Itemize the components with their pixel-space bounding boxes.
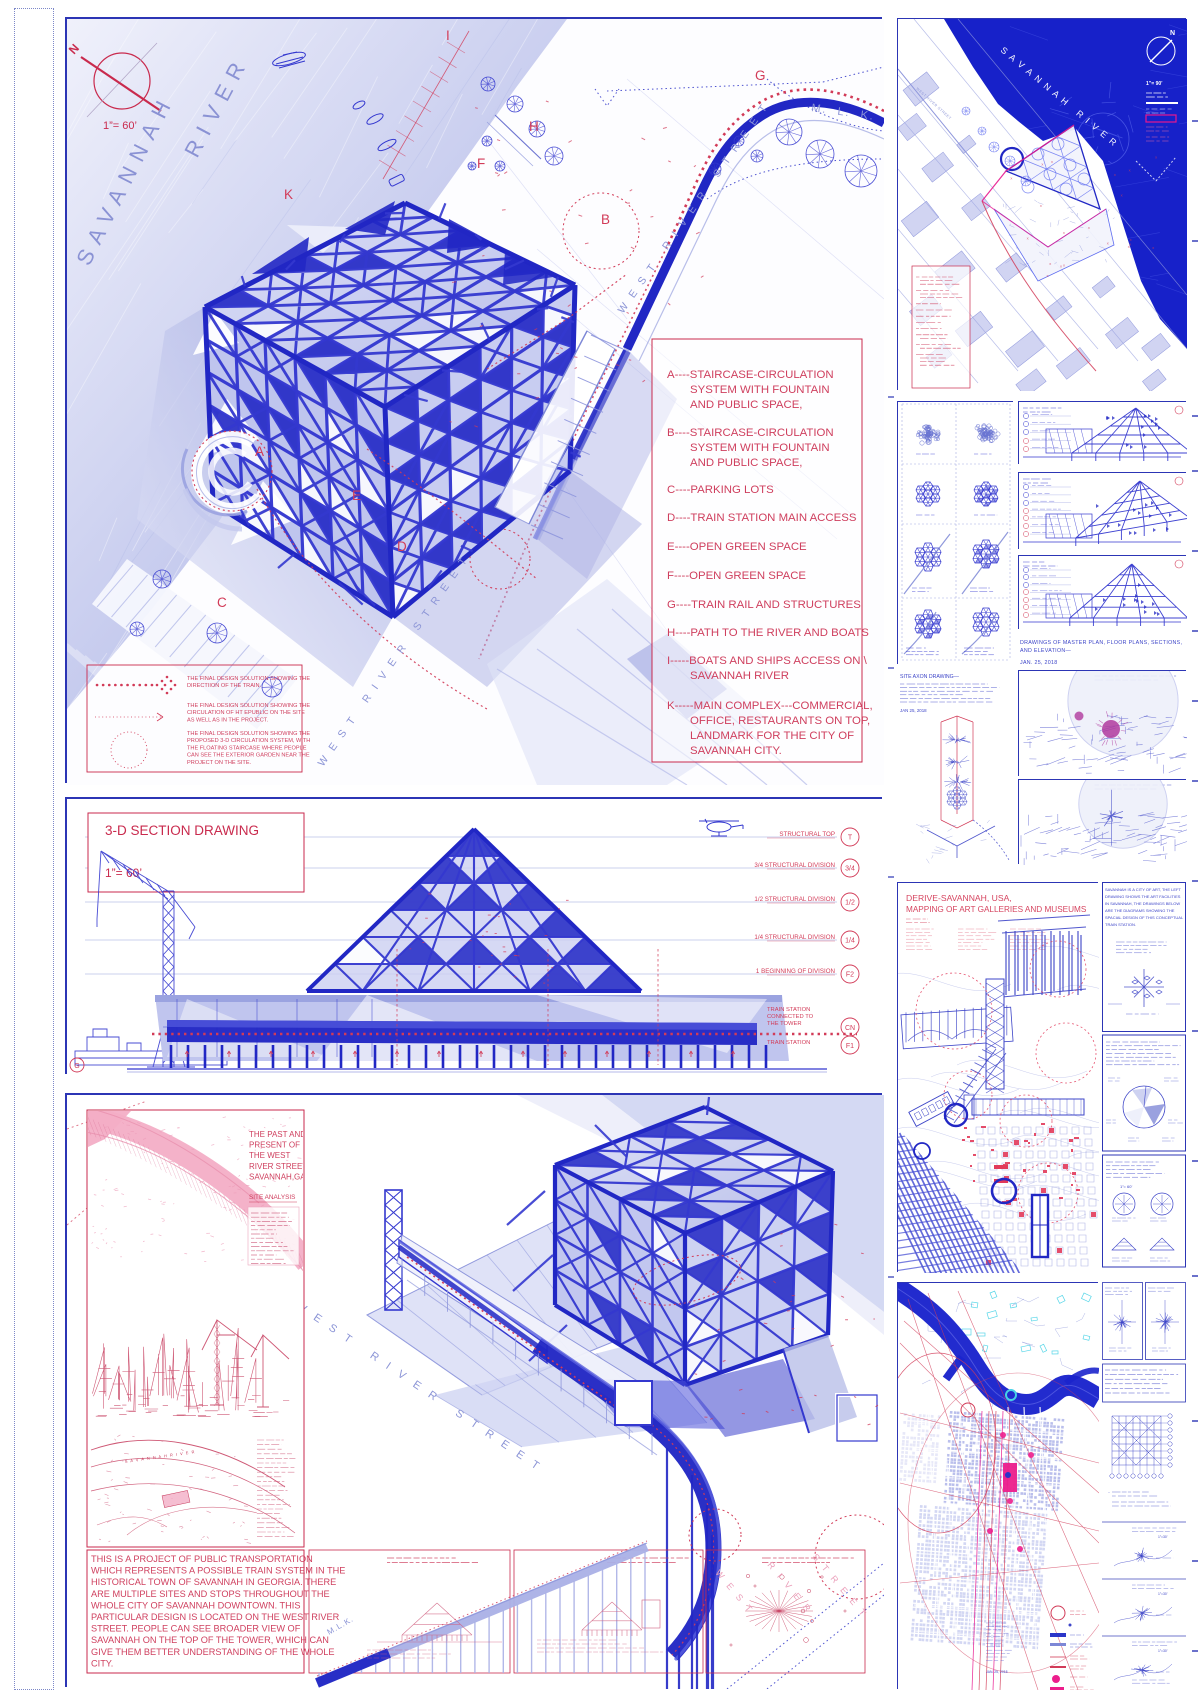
svg-text:THE WEST: THE WEST — [249, 1151, 290, 1160]
svg-text:1/4 STRUCTURAL DIVISION: 1/4 STRUCTURAL DIVISION — [754, 934, 835, 941]
svg-text:H----PATH TO THE RIVER AND BOA: H----PATH TO THE RIVER AND BOATS — [667, 627, 869, 639]
svg-text:F: F — [477, 156, 485, 171]
svg-text:3/4: 3/4 — [845, 866, 855, 873]
svg-text:AS WELL AS IN THE PROJECT.: AS WELL AS IN THE PROJECT. — [187, 717, 269, 723]
svg-text:D: D — [397, 539, 407, 554]
svg-text:DRAWING SHOWS THE ART FACILITI: DRAWING SHOWS THE ART FACILITIES — [1105, 894, 1181, 899]
svg-text:x: x — [1027, 236, 1029, 241]
svg-text:x: x — [1155, 154, 1157, 159]
svg-text:SAVANNAH,GA.: SAVANNAH,GA. — [249, 1172, 308, 1181]
svg-text:N: N — [1170, 30, 1175, 37]
svg-text:I-----BOATS AND SHIPS ACCESS O: I-----BOATS AND SHIPS ACCESS ON \ — [667, 655, 868, 667]
svg-text:E: E — [352, 488, 361, 503]
svg-text:·: · — [1108, 1490, 1110, 1496]
svg-text:CN: CN — [845, 1025, 855, 1032]
svg-text:x: x — [1010, 175, 1012, 180]
svg-text:THE FINAL DESIGN SOLUTION SHOW: THE FINAL DESIGN SOLUTION SHOWING THE — [187, 731, 310, 737]
svg-text:THIS IS A PROJECT OF PUBLIC T: THIS IS A PROJECT OF PUBLIC TRANSPORTATI… — [91, 1554, 313, 1564]
svg-text:STRUCTURAL TOP: STRUCTURAL TOP — [779, 831, 835, 838]
svg-text:PROJECT ON THE SITE.: PROJECT ON THE SITE. — [187, 760, 252, 766]
svg-text:DERIVE-SAVANNAH, USA,: DERIVE-SAVANNAH, USA, — [906, 893, 1012, 903]
svg-text:PRESENT OF: PRESENT OF — [249, 1141, 300, 1150]
svg-text:LANDMARK FOR THE CITY OF: LANDMARK FOR THE CITY OF — [690, 730, 854, 742]
svg-text:G----TRAIN RAIL AND STRUCTURES: G----TRAIN RAIL AND STRUCTURES — [667, 599, 861, 611]
svg-text:1”=30’: 1”=30’ — [1158, 1592, 1168, 1596]
svg-text:DIRECTIION OF THE TRAIN.: DIRECTIION OF THE TRAIN. — [187, 683, 262, 689]
svg-text:1”=30’: 1”=30’ — [1158, 1649, 1168, 1653]
svg-text:K: K — [284, 187, 293, 202]
svg-text:CITY.: CITY. — [91, 1658, 113, 1668]
svg-text:THE FINAL DESIGN SOLUTION SHOW: THE FINAL DESIGN SOLUTION SHOWING THE — [187, 703, 310, 709]
svg-text:F2: F2 — [846, 972, 854, 979]
svg-text:THE FINAL DESIGN SOLUTION SHOW: THE FINAL DESIGN SOLUTION SHOWING THE — [187, 676, 310, 682]
svg-text:x: x — [1063, 230, 1065, 235]
svg-text:F----OPEN GREEN SPACE: F----OPEN GREEN SPACE — [667, 570, 806, 582]
svg-text:JAN 25, 2018: JAN 25, 2018 — [900, 708, 927, 713]
svg-text:x: x — [1051, 159, 1053, 164]
svg-text:1”=30’: 1”=30’ — [1158, 1535, 1168, 1539]
svg-text:THE FLOATING STAIRCASE WHERE: THE FLOATING STAIRCASE WHERE PEOPLE — [187, 745, 307, 751]
svg-text:D----TRAIN STATION MAIN ACCESS: D----TRAIN STATION MAIN ACCESS — [667, 512, 857, 524]
svg-text:1/2: 1/2 — [845, 900, 855, 907]
svg-text:A----STAIRCASE-CIRCULATION: A----STAIRCASE-CIRCULATION — [667, 369, 834, 381]
svg-text:WHOLE CITY OF SAVANNAH DOWNTOW: WHOLE CITY OF SAVANNAH DOWNTOWN. THIS — [91, 1600, 300, 1610]
svg-text:AND PUBLIC SPACE,: AND PUBLIC SPACE, — [690, 457, 802, 469]
svg-text:x: x — [1129, 242, 1131, 247]
svg-text:SYSTEM WITH FOUNTAIN: SYSTEM WITH FOUNTAIN — [690, 384, 830, 396]
svg-text:WHICH REPRESENTS A POSSIBLE TR: WHICH REPRESENTS A POSSIBLE TRAIN SYSTEM… — [91, 1566, 345, 1576]
svg-text:1/4: 1/4 — [845, 938, 855, 945]
svg-text:x: x — [1040, 203, 1042, 208]
svg-text:DRAWINGS OF MASTER PLAN, FLOOR: DRAWINGS OF MASTER PLAN, FLOOR PLANS, SE… — [1020, 640, 1182, 646]
svg-text:SAVANNAH ON THE TOP OF THE TOW: SAVANNAH ON THE TOP OF THE TOWER, WHICH … — [91, 1635, 329, 1645]
svg-text:SAVANNAH CITY.: SAVANNAH CITY. — [690, 745, 782, 757]
svg-text:C: C — [217, 595, 227, 610]
svg-text:F1: F1 — [846, 1043, 854, 1050]
svg-text:TRAIN STATION: TRAIN STATION — [767, 1040, 810, 1046]
svg-text:x: x — [1047, 273, 1049, 278]
svg-text:SPACIAL DESIGN OF THIS CONCEPT: SPACIAL DESIGN OF THIS CONCEPTUAL — [1105, 915, 1184, 920]
svg-text:x: x — [1041, 162, 1043, 167]
svg-text:G: G — [755, 68, 766, 83]
svg-text:SYSTEM WITH FOUNTAIN: SYSTEM WITH FOUNTAIN — [690, 442, 830, 454]
svg-text:K-----MAIN COMPLEX---COMMERCIA: K-----MAIN COMPLEX---COMMERCIAL, — [667, 700, 873, 712]
svg-text:x: x — [1088, 225, 1090, 230]
svg-text:STREET. PEOPLE CAN SEE BROADE: STREET. PEOPLE CAN SEE BROADER VIEW OF — [91, 1624, 301, 1634]
svg-text:IN SAVANNAH, THE DRAWINGS BELO: IN SAVANNAH, THE DRAWINGS BELOW — [1105, 901, 1180, 906]
svg-text:x: x — [1129, 168, 1131, 173]
svg-text:1”= 60’: 1”= 60’ — [1120, 1184, 1132, 1189]
svg-text:1”= 60’: 1”= 60’ — [103, 120, 137, 132]
svg-text:T: T — [848, 835, 853, 842]
svg-text:1”= 90’: 1”= 90’ — [1146, 81, 1163, 87]
svg-text:THE TOWER: THE TOWER — [767, 1021, 802, 1027]
svg-text:x: x — [1049, 261, 1051, 266]
svg-text:x: x — [1121, 193, 1123, 198]
svg-text:1/2 STRUCTURAL DIVISION: 1/2 STRUCTURAL DIVISION — [754, 896, 835, 903]
svg-text:SITE AXON DRAWING—: SITE AXON DRAWING— — [900, 674, 960, 680]
svg-text:H: H — [529, 119, 539, 134]
svg-text:CONNECTED TO: CONNECTED TO — [767, 1014, 814, 1020]
svg-text:AND ELEVATION—: AND ELEVATION— — [1020, 648, 1071, 654]
svg-text:x: x — [1114, 172, 1116, 177]
svg-text:RIVER STREET,: RIVER STREET, — [249, 1162, 309, 1171]
svg-text:x: x — [1107, 241, 1109, 246]
svg-text:1 BEGINNING OF DIVISION: 1 BEGINNING OF DIVISION — [756, 968, 835, 975]
svg-text:AND PUBLIC SPACE,: AND PUBLIC SPACE, — [690, 399, 802, 411]
svg-text:x: x — [1152, 245, 1154, 250]
svg-text:CAN SEE THE EXTERIOR GARDEN NE: CAN SEE THE EXTERIOR GARDEN NEAR THE — [187, 753, 310, 759]
svg-text:HISTORICAL TOWN OF SAVANNAH IN: HISTORICAL TOWN OF SAVANNAH IN GEORGIA. … — [91, 1577, 336, 1587]
svg-text:ARE MULTIPLE SITES AND STOPS T: ARE MULTIPLE SITES AND STOPS THROUGHOUT … — [91, 1589, 330, 1599]
svg-text:SITE ANALYSIS: SITE ANALYSIS — [249, 1194, 295, 1201]
svg-text:JAN. 25, 2018: JAN. 25, 2018 — [1020, 660, 1057, 666]
svg-text:PARTICULAR DESIGN IS LOCATED O: PARTICULAR DESIGN IS LOCATED ON THE WEST… — [91, 1612, 340, 1622]
svg-text:3-D SECTION DRAWING: 3-D SECTION DRAWING — [105, 823, 259, 838]
svg-text:THE PAST AND: THE PAST AND — [249, 1130, 306, 1139]
svg-text:A: A — [255, 444, 264, 459]
svg-text:CIRCULATION OF HT EPUBLIC ON T: CIRCULATION OF HT EPUBLIC ON THE SITE — [187, 710, 305, 716]
svg-text:ARE THE DIAGRAMS SHOWING THE: ARE THE DIAGRAMS SHOWING THE — [1105, 908, 1175, 913]
svg-text:SAVANNAH IS A CITY OF ART, THE: SAVANNAH IS A CITY OF ART, THE LEFT — [1105, 887, 1181, 892]
svg-text:C----PARKING LOTS: C----PARKING LOTS — [667, 484, 774, 496]
svg-text:TRAIN STATION: TRAIN STATION — [767, 1007, 810, 1013]
svg-text:SAVANNAH RIVER: SAVANNAH RIVER — [690, 670, 789, 682]
svg-text:JAN. 25, 2018: JAN. 25, 2018 — [986, 1670, 1008, 1674]
svg-text:PROPOSED 3-D CIRCULATION SYSTE: PROPOSED 3-D CIRCULATION SYSTEM, WITH — [187, 738, 310, 744]
svg-text:x: x — [1060, 263, 1062, 268]
svg-text:B: B — [601, 212, 610, 227]
svg-text:G: G — [74, 1063, 79, 1070]
svg-text:x: x — [1063, 262, 1065, 267]
svg-text:OFFICE, RESTAURANTS ON TOP,: OFFICE, RESTAURANTS ON TOP, — [690, 715, 870, 727]
svg-text:E----OPEN GREEN SPACE: E----OPEN GREEN SPACE — [667, 541, 807, 553]
svg-text:I: I — [446, 28, 450, 43]
svg-text:GIVE THEM BETTER UNDERSTANDING: GIVE THEM BETTER UNDERSTANDING OF THE WH… — [91, 1647, 335, 1657]
svg-text:3/4 STRUCTURAL DIVISION: 3/4 STRUCTURAL DIVISION — [754, 862, 835, 869]
svg-text:B----STAIRCASE-CIRCULATION: B----STAIRCASE-CIRCULATION — [667, 427, 834, 439]
svg-text:TRAIN STATION.: TRAIN STATION. — [1105, 922, 1136, 927]
svg-text:MAPPING OF ART GALLERIES AND: MAPPING OF ART GALLERIES AND MUSEUMS — [906, 905, 1087, 914]
